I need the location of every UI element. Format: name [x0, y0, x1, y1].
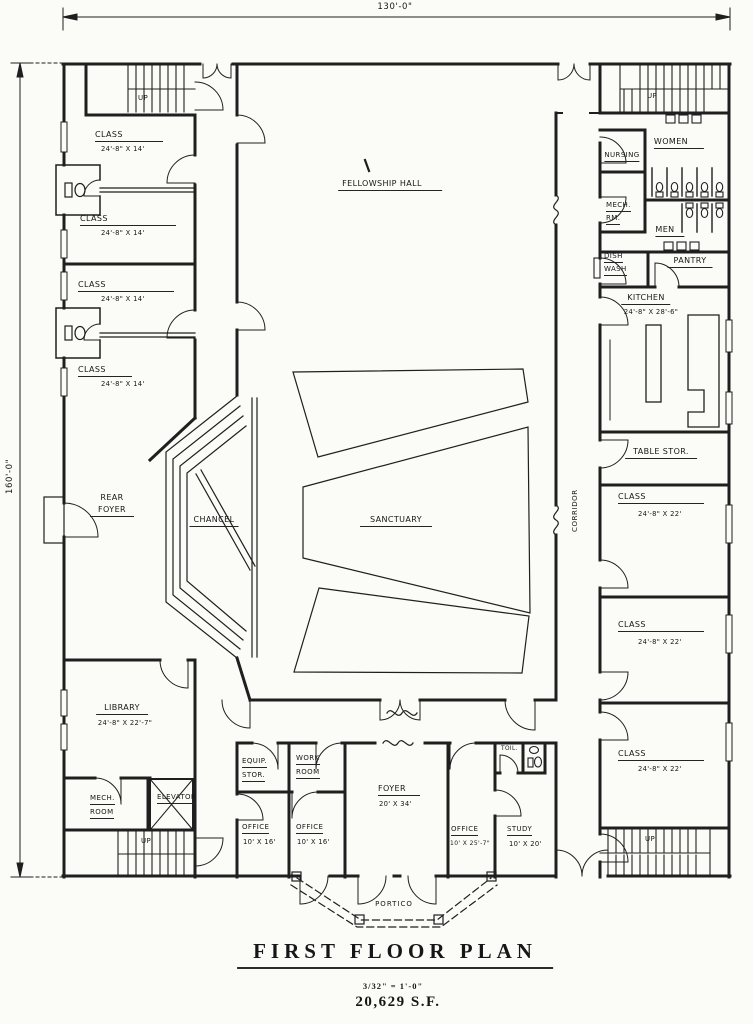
wall-break-mark: [383, 741, 413, 746]
kitchen-counters: [610, 315, 719, 427]
stair-northeast: [620, 66, 729, 112]
room-size-office-sw1: 10' X 16': [243, 839, 276, 846]
room-label-mech-room-line1: MECH.: [90, 795, 115, 805]
stair-sw-up-label: UP: [141, 838, 151, 845]
wall-break-mark: [387, 711, 417, 716]
room-size-library: 24'-8" X 22'-7": [98, 720, 152, 727]
room-size-class-nw2: 24'-8" X 14': [101, 230, 145, 237]
room-size-foyer: 20' X 34': [379, 801, 412, 808]
pen-mark: [365, 160, 369, 171]
room-label-mech-rm-line1: MECH.: [606, 202, 631, 212]
overall-width-dimension: 130'-0": [377, 3, 412, 12]
room-label-dish-wash-line2: WASH: [604, 266, 627, 276]
room-label-class-nw1: CLASS: [95, 131, 163, 142]
room-label-rear-foyer-line2: FOYER: [90, 506, 134, 517]
room-label-sanctuary: SANCTUARY: [360, 516, 432, 527]
room-label-work-room-line1: WORK: [296, 755, 320, 765]
floor-plan-sheet: 130'-0" 160'-0" UP UP UP UP CLASS 24'-8"…: [0, 0, 753, 1024]
room-size-class-nw3: 24'-8" X 14': [101, 296, 145, 303]
stair-northwest: [128, 66, 195, 112]
drawing-title: FIRST FLOOR PLAN: [237, 941, 553, 969]
wall-break-mark: [554, 195, 559, 225]
room-label-class-e3: CLASS: [618, 750, 704, 761]
corridor-walls: [556, 64, 600, 877]
room-label-class-nw4: CLASS: [78, 366, 132, 377]
room-size-kitchen: 24'-8" X 28'-6": [624, 309, 678, 316]
room-label-table-stor: TABLE STOR.: [625, 448, 697, 459]
room-label-equip-stor-line2: STOR.: [242, 772, 265, 782]
study-toilet-fixtures: [528, 747, 542, 768]
room-label-class-e1: CLASS: [618, 493, 704, 504]
elevator-shaft: [150, 779, 193, 830]
room-label-office-s: OFFICE: [451, 826, 478, 836]
room-label-kitchen: KITCHEN: [621, 294, 670, 305]
room-label-study: STUDY: [507, 826, 532, 836]
room-size-class-e2: 24'-8" X 22': [638, 639, 682, 646]
room-size-office-s: 10' X 25'-7": [450, 841, 490, 847]
room-label-office-sw1: OFFICE: [242, 824, 269, 834]
room-label-mech-rm-line2: RM.: [606, 215, 620, 225]
room-label-work-room-line2: ROOM: [296, 769, 320, 779]
wall-break-mark: [554, 505, 559, 535]
drawing-area: 20,629 S.F.: [355, 995, 440, 1010]
room-label-chancel: CHANCEL: [190, 516, 239, 527]
room-label-dish-wash-line1: DISH: [604, 253, 623, 263]
stair-ne-up-label: UP: [647, 93, 657, 100]
room-label-equip-stor-line1: EQUIP.: [242, 758, 267, 768]
room-label-library: LIBRARY: [96, 704, 148, 715]
chancel-steps: [166, 396, 257, 700]
room-size-study: 10' X 20': [509, 841, 542, 848]
room-label-rear-foyer-line1: REAR: [100, 494, 123, 502]
room-label-class-e2: CLASS: [618, 621, 704, 632]
room-size-office-sw2: 10' X 16': [297, 839, 330, 846]
overall-height-dimension: 160'-0": [6, 459, 15, 494]
drawing-scale: 3/32" = 1'-0": [363, 982, 423, 991]
room-label-corridor: CORRIDOR: [572, 489, 579, 532]
toilet-alcove-south: [56, 308, 100, 358]
room-label-foyer: FOYER: [378, 785, 420, 796]
toilet-alcove-north: [56, 165, 100, 215]
stair-se-up-label: UP: [645, 836, 655, 843]
room-label-elevator: ELEVATOR: [157, 794, 196, 804]
room-label-portico: PORTICO: [375, 901, 413, 908]
room-label-fellowship-hall: FELLOWSHIP HALL: [338, 180, 442, 191]
room-size-class-nw1: 24'-8" X 14': [101, 146, 145, 153]
room-size-class-e1: 24'-8" X 22': [638, 511, 682, 518]
room-label-class-nw2: CLASS: [80, 215, 176, 226]
room-size-class-e3: 24'-8" X 22': [638, 766, 682, 773]
room-label-mech-room-line2: ROOM: [90, 809, 114, 819]
south-block-walls: [237, 743, 545, 877]
room-label-class-nw3: CLASS: [78, 281, 174, 292]
room-label-toilet: TOIL.: [501, 747, 518, 753]
room-label-office-sw2: OFFICE: [296, 824, 323, 834]
room-size-class-nw4: 24'-8" X 14': [101, 381, 145, 388]
room-label-men: MEN: [655, 226, 684, 237]
room-label-nursing: NURSING: [604, 152, 639, 162]
room-label-women: WOMEN: [654, 138, 704, 149]
rear-foyer-exterior-stoop: [44, 497, 64, 543]
room-label-pantry: PANTRY: [668, 257, 713, 268]
stair-southwest: [118, 832, 195, 876]
stair-nw-up-label: UP: [138, 95, 148, 102]
sanctuary-south-wall: [237, 700, 556, 743]
